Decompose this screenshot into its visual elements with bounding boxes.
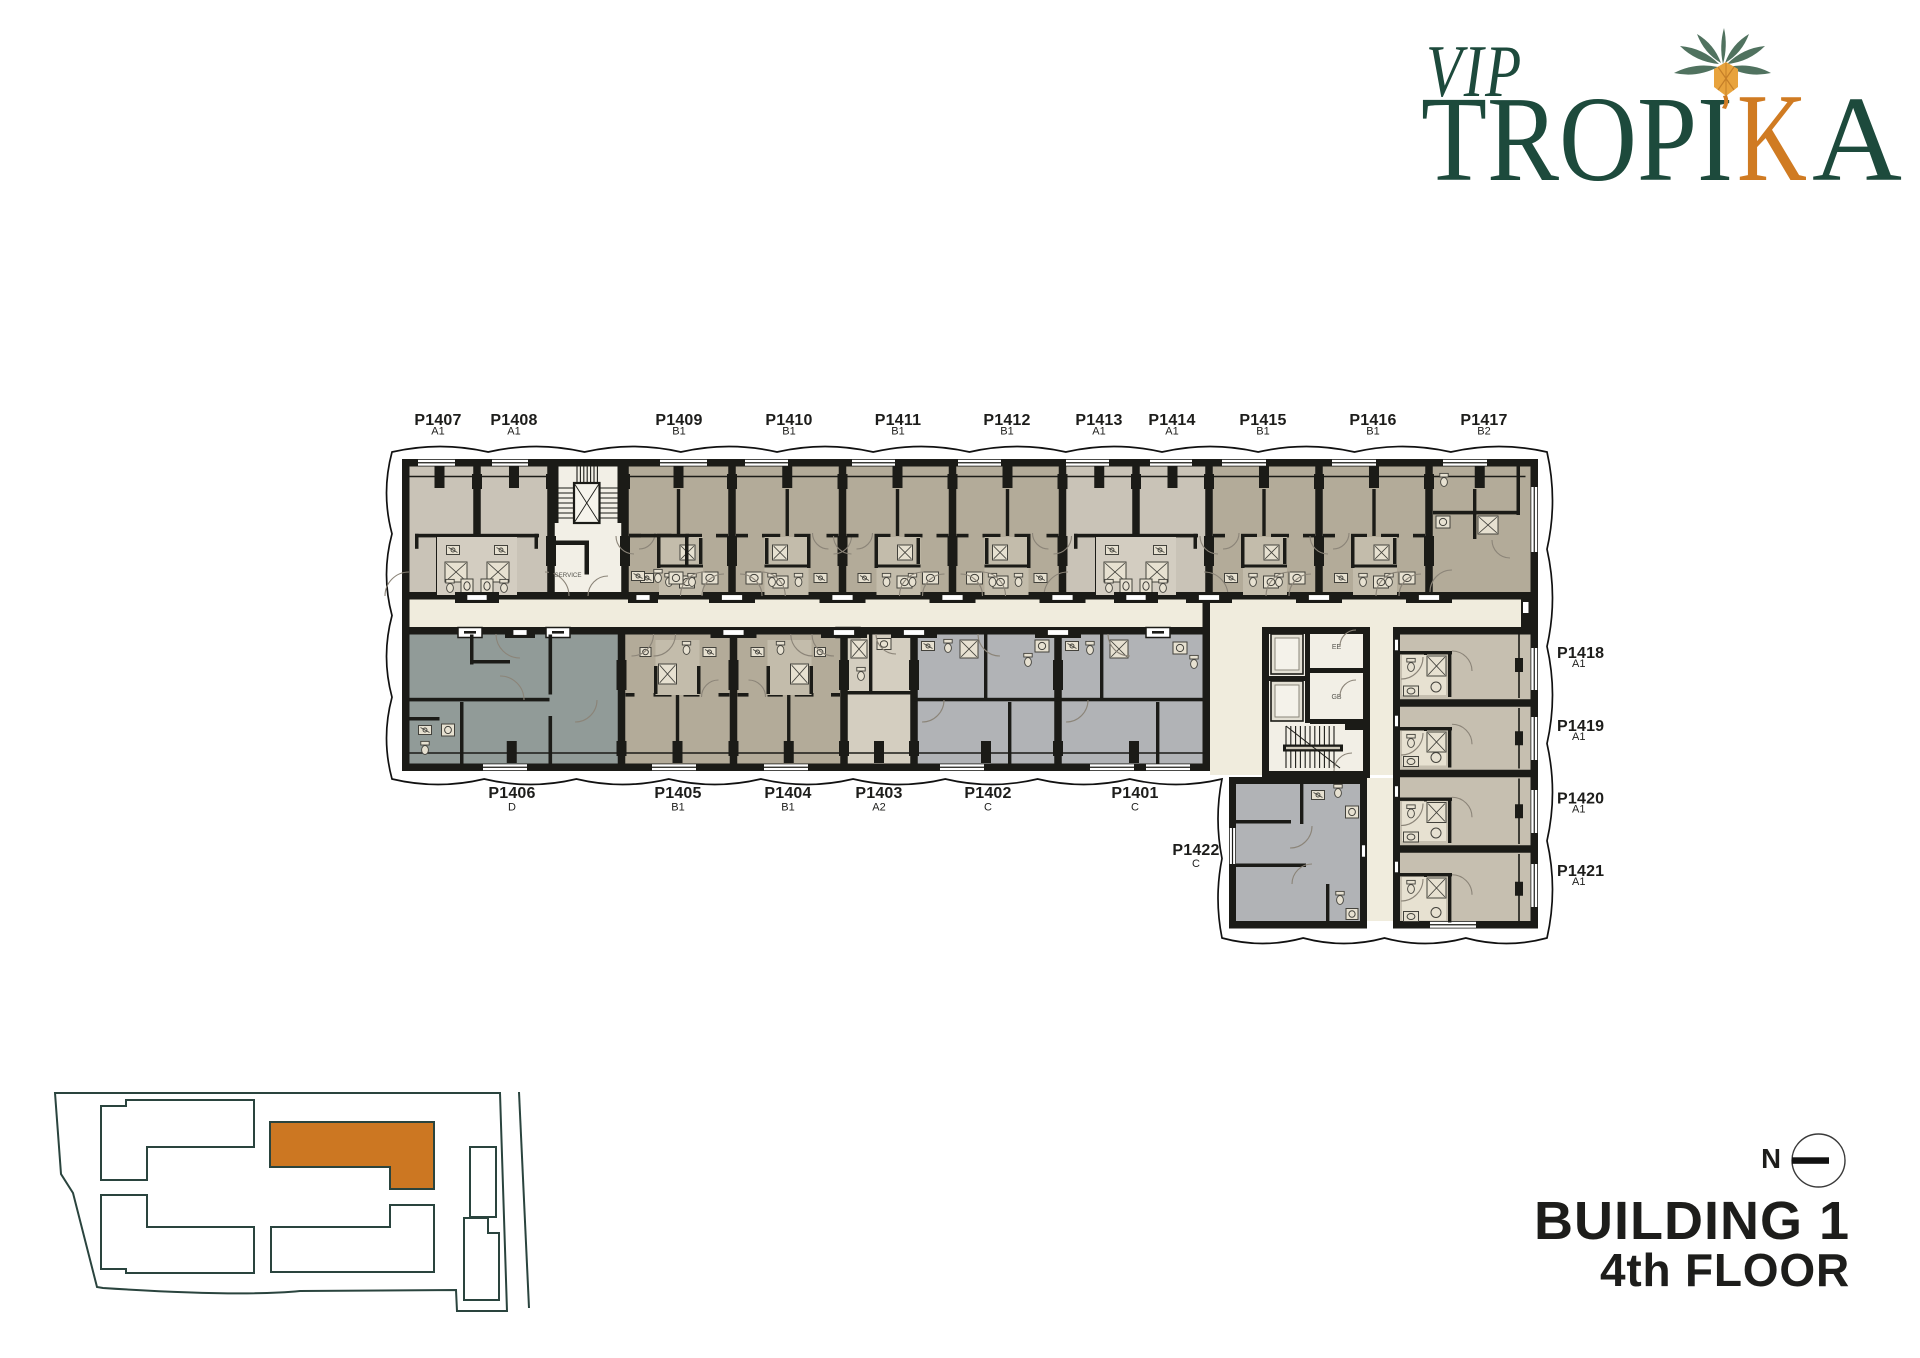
svg-text:K: K [1737,69,1807,208]
svg-text:B1: B1 [1256,426,1269,438]
svg-text:C: C [1192,858,1200,870]
svg-text:B1: B1 [1000,426,1013,438]
svg-text:A1: A1 [1165,426,1178,438]
svg-text:TROPI: TROPI [1421,72,1733,207]
svg-text:B1: B1 [782,426,795,438]
svg-text:P1422: P1422 [1172,842,1219,859]
svg-text:B1: B1 [1366,426,1379,438]
svg-text:B2: B2 [1477,426,1490,438]
svg-text:N: N [1761,1143,1781,1174]
svg-text:A1: A1 [1572,876,1585,888]
svg-text:P1401: P1401 [1111,785,1158,802]
svg-text:SERVICE: SERVICE [554,572,581,579]
svg-text:P1405: P1405 [654,785,701,802]
svg-text:A1: A1 [1572,731,1585,743]
svg-text:P1404: P1404 [764,785,811,802]
svg-text:A1: A1 [1572,658,1585,670]
svg-text:C: C [1131,802,1139,814]
svg-text:B1: B1 [672,426,685,438]
svg-text:C: C [984,802,992,814]
svg-text:P1406: P1406 [488,785,535,802]
svg-text:A2: A2 [872,802,885,814]
svg-text:B1: B1 [671,802,684,814]
svg-text:B1: B1 [781,802,794,814]
svg-text:A1: A1 [507,426,520,438]
svg-text:B1: B1 [891,426,904,438]
svg-text:P1403: P1403 [855,785,902,802]
svg-text:P1402: P1402 [964,785,1011,802]
svg-text:A1: A1 [431,426,444,438]
svg-text:A: A [1812,72,1902,207]
svg-text:A1: A1 [1092,426,1105,438]
svg-text:D: D [508,802,516,814]
svg-text:A1: A1 [1572,804,1585,816]
svg-text:4th FLOOR: 4th FLOOR [1600,1244,1850,1296]
svg-text:BUILDING 1: BUILDING 1 [1534,1191,1850,1251]
